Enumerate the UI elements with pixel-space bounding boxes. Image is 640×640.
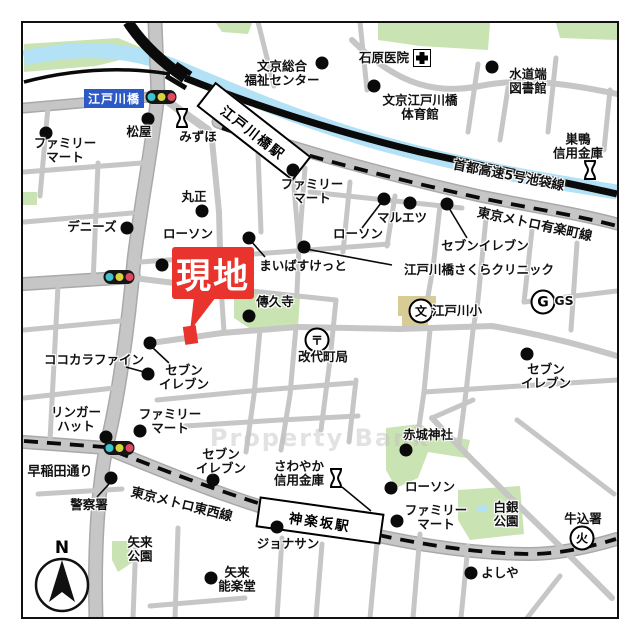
- site-marker-label: 現地: [176, 248, 250, 299]
- hospital-cross-icon: [413, 49, 431, 67]
- denkyuji-temple-dot: [243, 310, 256, 323]
- seven-eleven-northeast-label: セブンイレブン: [441, 239, 529, 253]
- yarai-noh-theater-label: 矢来 能楽堂: [218, 565, 256, 593]
- traffic-light-icon: [104, 270, 135, 284]
- compass: N: [33, 538, 91, 616]
- dennys-dot: [121, 222, 134, 235]
- sawayaka-shinkin-bank-label: さわやか 信用金庫: [274, 459, 324, 487]
- maruetsu-label: マルエツ: [377, 211, 427, 225]
- yoshiya-dot: [465, 567, 478, 580]
- seven-eleven-east-label: セブン イレブン: [521, 362, 571, 390]
- police-station-dot: [105, 472, 118, 485]
- jonathans-label: ジョナサン: [257, 537, 320, 551]
- lawson-west-dot: [156, 259, 169, 272]
- lawson-south-label: ローソン: [405, 480, 455, 494]
- familymart-northwest-label: ファミリー マート: [34, 136, 97, 164]
- seven-eleven-central-dot: [144, 337, 157, 350]
- ringer-hut-label: リンガー ハット: [51, 405, 101, 433]
- kaitaimachi-post-office-label: 改代町局: [298, 350, 348, 364]
- familymart-north-dot: [287, 164, 300, 177]
- yoshiya-label: よしや: [481, 566, 518, 580]
- yarai-park-label: 矢来 公園: [127, 535, 152, 563]
- gs-symbol-icon: G: [531, 290, 556, 315]
- cocokara-fine-dot: [142, 368, 155, 381]
- lawson-central-dot: [378, 193, 391, 206]
- edogawabashi-sakura-clinic-label: 江戸川橋さくらクリニック: [404, 263, 554, 277]
- waseda-dori-label: 早稲田通り: [27, 461, 92, 480]
- familymart-south-dot: [391, 515, 404, 528]
- familymart-north-label: ファミリー マート: [281, 177, 344, 205]
- denkyuji-temple-label: 傳久寺: [256, 295, 294, 309]
- bank-symbol-icon: [582, 160, 598, 184]
- edogawabashi-sign: 江戸川橋: [84, 89, 144, 108]
- sawayaka-shinkin-bank-connector: [342, 487, 371, 511]
- akagi-shrine-dot: [400, 444, 413, 457]
- sugamo-shinkin-bank-label: 巣鴨 信用金庫: [553, 132, 603, 160]
- lawson-west-label: ローソン: [163, 227, 213, 241]
- dennys-label: デニーズ: [67, 220, 116, 234]
- maibasuketto-dot: [243, 232, 256, 245]
- seven-eleven-northeast-dot: [441, 198, 454, 211]
- suidobata-library-label: 水道端 図書館: [509, 67, 547, 95]
- marusho-label: 丸正: [181, 190, 206, 204]
- suidobata-library-dot: [486, 61, 499, 74]
- seven-eleven-east-dot: [521, 348, 534, 361]
- compass-rose-icon: [33, 556, 91, 614]
- bunkyo-edogawabashi-gym-dot: [368, 80, 381, 93]
- marusho-dot: [196, 205, 209, 218]
- fire-symbol-icon: 火: [570, 526, 595, 551]
- traffic-light-icon: [146, 90, 177, 104]
- shirogane-park-label: 白銀 公園: [493, 500, 518, 528]
- mizuho-label: みずほ: [179, 130, 217, 144]
- site-marker[interactable]: 現地: [172, 247, 254, 299]
- pond: [478, 505, 487, 512]
- maibasuketto-label: まいばすけっと: [259, 259, 347, 273]
- maruetsu-dot: [404, 197, 417, 210]
- ishihara-clinic-label: 石原医院: [359, 51, 409, 65]
- compass-north-label: N: [55, 538, 69, 558]
- seven-eleven-central-connector: [153, 348, 169, 363]
- bunkyo-sogo-fukushi-center-label: 文京総合 福祉センター: [244, 59, 319, 87]
- lawson-south-dot: [385, 482, 398, 495]
- edogawa-elementary-label: 江戸川小: [432, 304, 482, 318]
- gas-station-label: GS: [554, 294, 573, 308]
- familymart-central-label: ファミリー マート: [139, 407, 202, 435]
- jonathans-dot: [271, 521, 284, 534]
- map-canvas: Property Bank 江戸川橋駅神楽坂駅 現地 ファミリー マート松屋みず…: [0, 0, 640, 640]
- traffic-light-icon: [104, 441, 135, 455]
- cocokara-fine-label: ココカラファイン: [44, 353, 144, 367]
- bunkyo-edogawabashi-gym-label: 文京江戸川橋 体育館: [382, 93, 457, 121]
- seven-eleven-central-label: セブン イレブン: [159, 363, 209, 391]
- site-marker-tail: [186, 297, 226, 335]
- school-symbol-icon: 文: [409, 299, 434, 324]
- familymart-south-label: ファミリー マート: [405, 503, 468, 531]
- lawson-central-label: ローソン: [333, 227, 383, 241]
- seven-eleven-northeast-connector: [449, 208, 467, 238]
- akagi-shrine-label: 赤城神社: [403, 428, 453, 442]
- bank-symbol-icon: [328, 468, 344, 492]
- seven-eleven-south-label: セブン イレブン: [196, 447, 246, 475]
- police-station-label: 警察署: [70, 498, 108, 512]
- edogawabashi-sakura-clinic-dot: [298, 241, 311, 254]
- ushigome-fire-station-label: 牛込署: [564, 512, 602, 526]
- yarai-noh-theater-dot: [205, 572, 218, 585]
- matsuya-label: 松屋: [126, 125, 151, 139]
- seven-eleven-south-dot: [207, 474, 220, 487]
